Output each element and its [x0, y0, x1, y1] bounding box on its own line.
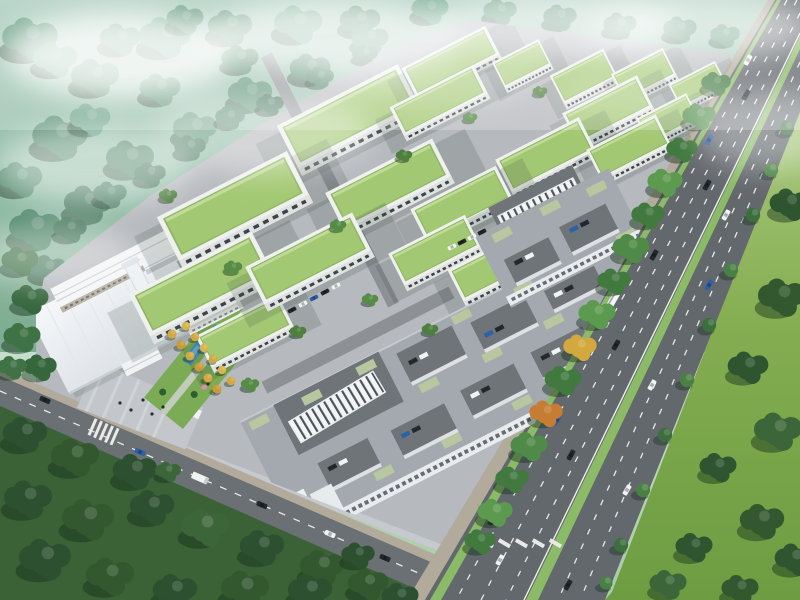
- scene-canvas: [0, 0, 800, 600]
- aerial-rendering: [0, 0, 800, 600]
